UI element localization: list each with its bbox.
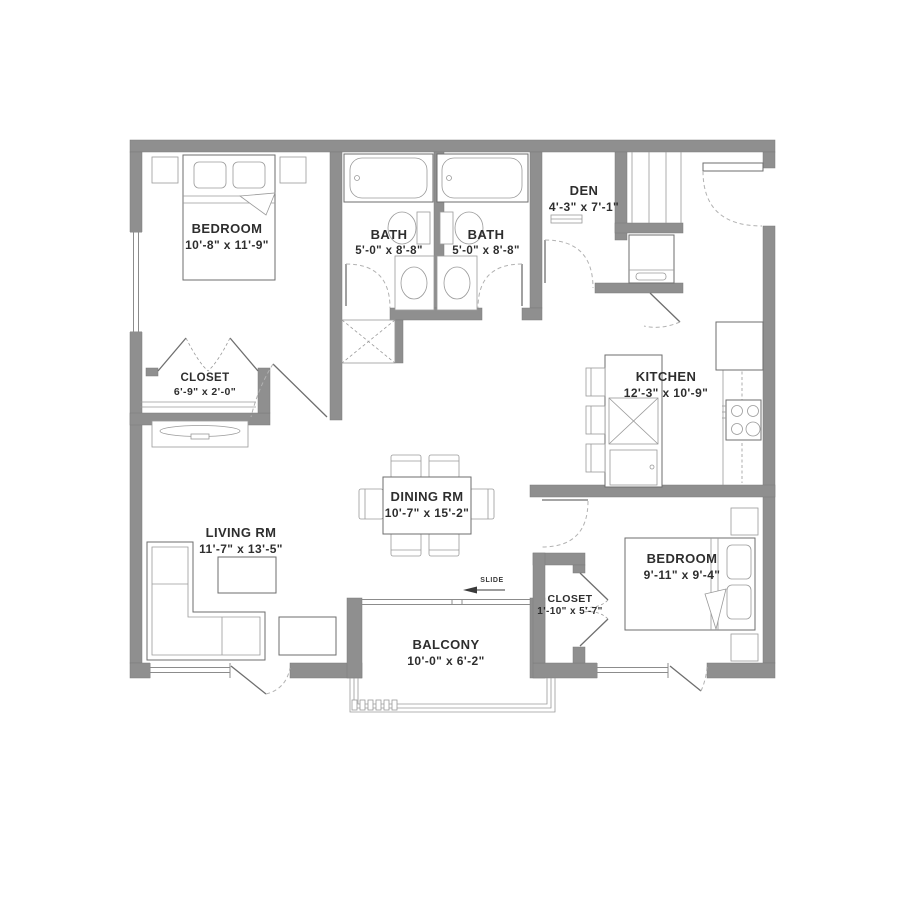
room-name: BATH: [355, 227, 423, 244]
slide-arrow-icon: [463, 587, 505, 594]
pillow: [727, 585, 751, 619]
room-dims: 4'-3" x 7'-1": [549, 200, 619, 215]
room-name: KITCHEN: [624, 369, 708, 386]
nightstand: [280, 157, 306, 183]
fridge-icon: [716, 322, 763, 370]
bedroom2-furniture: [625, 508, 758, 661]
room-label-bath-1: BATH 5'-0" x 8'-8": [355, 227, 423, 258]
pillow: [727, 545, 751, 579]
room-dims: 9'-11" x 9'-4": [644, 568, 721, 583]
room-label-kitchen: KITCHEN 12'-3" x 10'-9": [624, 369, 708, 401]
slide-annotation: SLIDE: [480, 577, 504, 584]
bath1-door: [346, 264, 390, 308]
room-label-bath-2: BATH 5'-0" x 8'-8": [452, 227, 520, 258]
room-name: BALCONY: [407, 637, 484, 654]
bathtub-icon: [344, 154, 433, 202]
room-name: BATH: [452, 227, 520, 244]
tv-console: [152, 421, 248, 447]
nightstand: [152, 157, 178, 183]
room-label-closet-1: CLOSET 6'-9" x 2'-0": [174, 371, 236, 399]
room-label-bedroom-1: BEDROOM 10'-8" x 11'-9": [185, 221, 269, 253]
kitchen-fixtures: [586, 322, 763, 487]
room-name: CLOSET: [537, 593, 602, 606]
room-label-closet-2: CLOSET 1'-10" x 5'-7": [537, 593, 602, 619]
room-dims: 10'-0" x 6'-2": [407, 654, 484, 669]
bedroom1-furniture: [152, 155, 306, 280]
balcony-railing: [350, 678, 555, 712]
room-name: DEN: [549, 183, 619, 200]
room-label-living-room: LIVING RM 11'-7" x 13'-5": [199, 525, 283, 557]
room-label-den: DEN 4'-3" x 7'-1": [549, 183, 619, 215]
nightstand: [731, 634, 758, 661]
pillow: [233, 162, 265, 188]
washer-dryer-icon: [629, 235, 674, 283]
living-room-window: [150, 662, 230, 678]
den-door: [545, 240, 593, 288]
room-dims: 5'-0" x 8'-8": [355, 244, 423, 259]
pillow: [194, 162, 226, 188]
room-dims: 6'-9" x 2'-0": [174, 386, 236, 399]
bar-stools: [586, 368, 605, 472]
room-dims: 10'-8" x 11'-9": [185, 238, 269, 253]
entry-door: [703, 163, 763, 226]
room-name: BEDROOM: [185, 221, 269, 238]
room-dims: 11'-7" x 13'-5": [199, 542, 283, 557]
bedroom2-patio-door: [670, 666, 707, 691]
room-label-dining-room: DINING RM 10'-7" x 15'-2": [385, 489, 469, 521]
coffee-table: [218, 557, 276, 593]
bedroom2-door: [542, 500, 588, 547]
room-name: CLOSET: [174, 371, 236, 386]
railing-posts: [352, 700, 397, 710]
stove-icon: [722, 400, 761, 440]
room-name: LIVING RM: [199, 525, 283, 542]
closet1-bifold-doors: [158, 338, 258, 371]
den-shelf: [551, 215, 582, 223]
bedroom1-window: [129, 232, 143, 332]
bedroom2-window: [597, 662, 668, 678]
room-dims: 10'-7" x 15'-2": [385, 506, 469, 521]
side-table: [279, 617, 336, 655]
nightstand: [731, 508, 758, 535]
room-dims: 1'-10" x 5'-7": [537, 606, 602, 619]
laundry-closet-door: [644, 293, 680, 327]
floor-plan-drawing: [0, 0, 901, 901]
bath2-door: [478, 264, 522, 308]
room-label-bedroom-2: BEDROOM 9'-11" x 9'-4": [644, 551, 721, 583]
floor-plan: BEDROOM 10'-8" x 11'-9" BATH 5'-0" x 8'-…: [0, 0, 901, 901]
room-name: BEDROOM: [644, 551, 721, 568]
sink-vanity-icon: [437, 256, 477, 310]
room-dims: 5'-0" x 8'-8": [452, 244, 520, 259]
linen-closet: [342, 320, 395, 363]
balcony-sliding-door: [362, 600, 530, 605]
room-dims: 12'-3" x 10'-9": [624, 386, 708, 401]
room-name: DINING RM: [385, 489, 469, 506]
sink-vanity-icon: [395, 256, 434, 310]
entry-closet: [632, 152, 681, 223]
balcony-swing-door: [231, 666, 290, 694]
room-label-balcony: BALCONY 10'-0" x 6'-2": [407, 637, 484, 669]
bathtub-icon: [437, 154, 528, 202]
